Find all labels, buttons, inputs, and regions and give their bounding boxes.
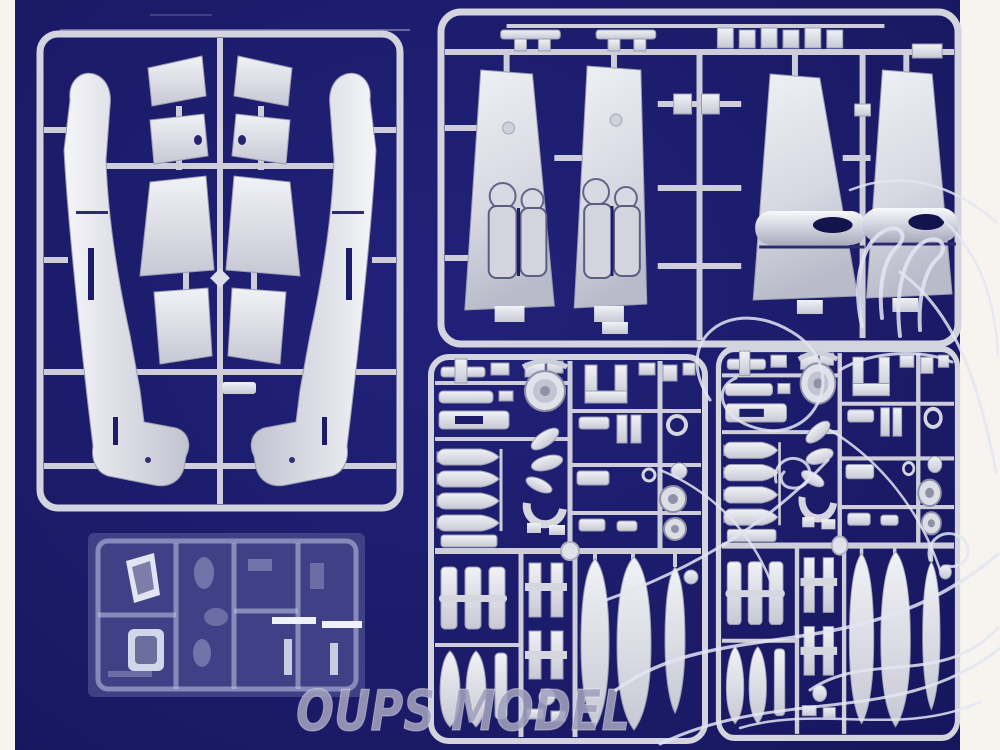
bomb-horizontal: [437, 515, 499, 531]
bomb-horizontal: [437, 449, 499, 465]
locator-hole: [145, 457, 151, 463]
watermark-text: OUPS MODEL: [296, 679, 630, 744]
floral-swirl-ornament: [600, 130, 1000, 750]
sprue-fuselage-and-wings: [36, 30, 404, 512]
swirl-lines: [606, 180, 1000, 744]
panel-hole: [194, 135, 202, 145]
panel-line: [76, 211, 108, 214]
wing-panels-right: [226, 56, 300, 364]
wing-panels-left: [140, 56, 214, 364]
watermark: OUPS MODEL: [292, 672, 637, 750]
small-part: [222, 382, 256, 394]
runner-node: [561, 542, 579, 560]
wheel-and-propeller-group: [523, 361, 567, 535]
fuselage-slot: [88, 248, 94, 300]
runner-node: [210, 268, 230, 288]
panel-hole: [238, 135, 246, 145]
faint-edge-dash: [150, 14, 212, 16]
bomb-horizontal: [437, 471, 499, 487]
bomb-horizontal: [437, 493, 499, 509]
clear-strip-part: [272, 617, 316, 624]
wing-panel-with-gear-bay: [465, 70, 554, 322]
clear-strip-part: [322, 621, 362, 628]
product-photo: OUPS MODEL: [0, 0, 1000, 750]
fuselage-slot: [113, 417, 118, 445]
